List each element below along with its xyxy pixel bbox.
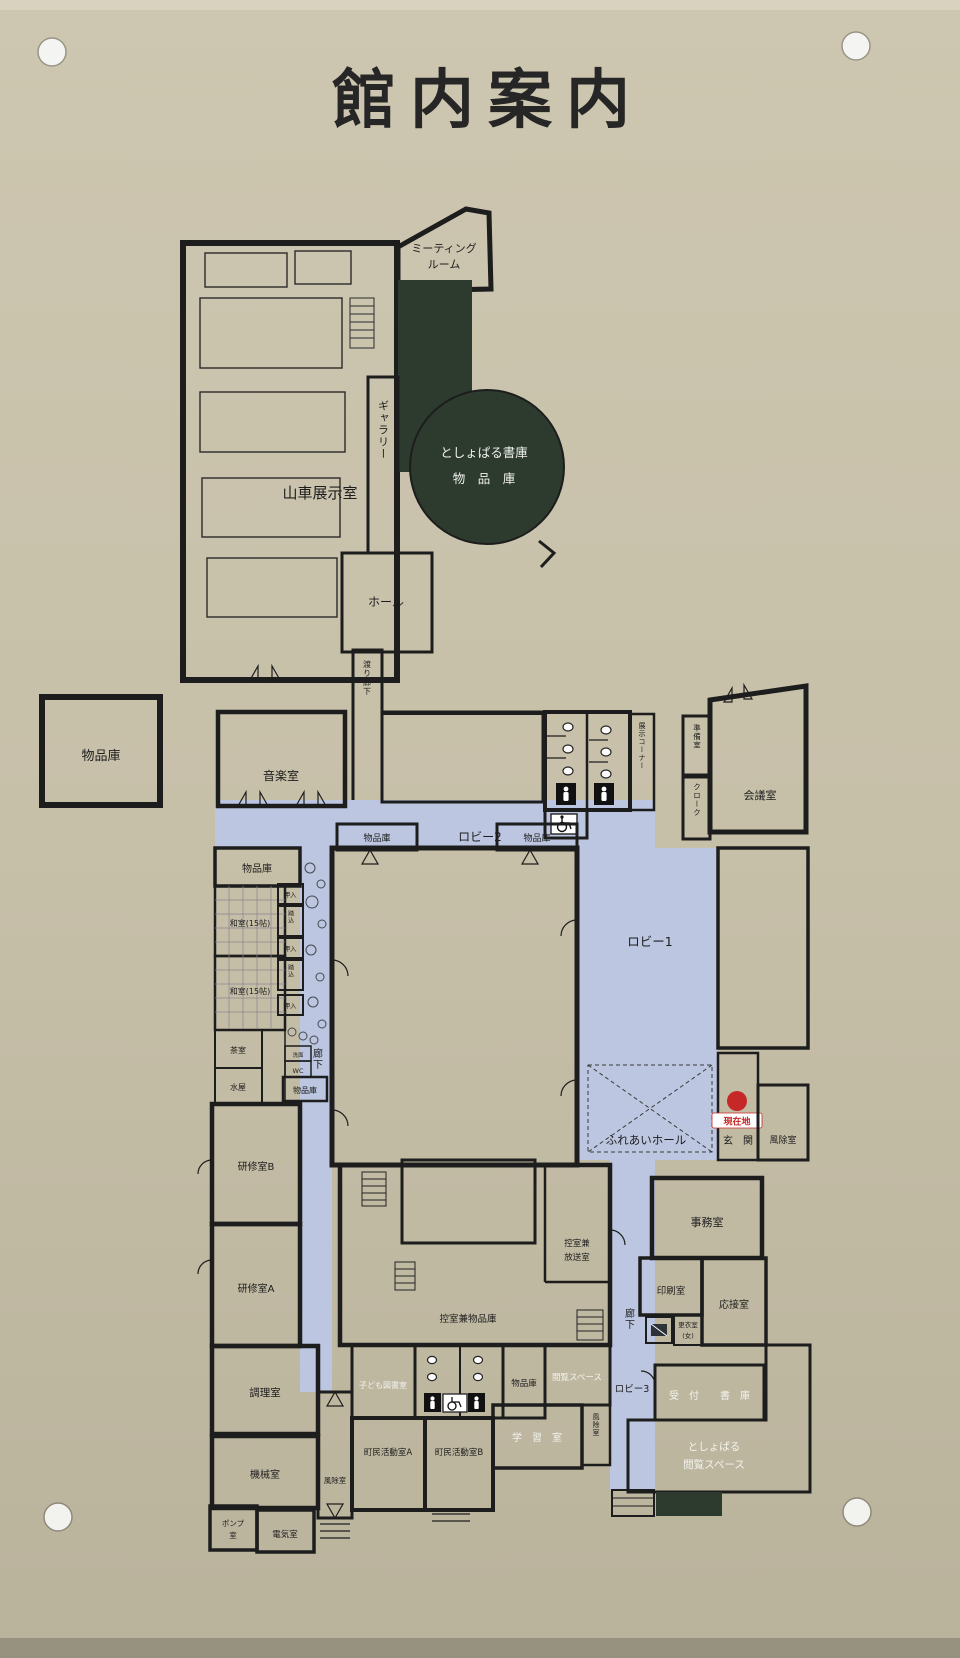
label-hikae-hoso-1: 控室兼 (564, 1238, 590, 1249)
page-title: 館内案内 (332, 64, 644, 138)
label-shoko: 書 庫 (720, 1389, 750, 1402)
label-fujo-south: 風除室 (592, 1413, 600, 1437)
label-roka-east: 廊下 (623, 1307, 635, 1330)
label-lobby3: ロビー3 (615, 1384, 650, 1395)
label-hikae-hoso-2: 放送室 (564, 1252, 590, 1263)
label-insatsushitsu: 印刷室 (657, 1285, 686, 1297)
female-toilet-icon-south (468, 1393, 485, 1412)
label-genkan: 玄 関 (723, 1134, 753, 1147)
label-dashi: 山車展示室 (282, 484, 357, 502)
corridor-lobby1-fureai: ロビー1 ふれあいホール (577, 848, 718, 1160)
label-genzaichi: 現在地 (723, 1116, 750, 1128)
label-washitsu-1: 和室(15帖) (230, 918, 270, 928)
label-osetsushitsu: 応接室 (719, 1298, 749, 1311)
label-fujo-west: 風除室 (324, 1475, 347, 1485)
label-wc: WC (293, 1067, 304, 1075)
label-meeting-2: ルーム (428, 258, 461, 271)
label-oshiire-1: 押入 (284, 890, 298, 899)
label-chomin-a: 町民活動室A (364, 1447, 413, 1458)
label-meeting-1: ミーティング (411, 241, 476, 255)
label-fureai-hall: ふれあいホール (606, 1133, 687, 1147)
label-toshoparu-shoko: としょぱる書庫 (440, 445, 528, 460)
label-uketsuke: 受 付 (669, 1389, 699, 1402)
male-toilet-icon-south (424, 1393, 441, 1412)
label-lobby1: ロビー1 (627, 934, 672, 949)
label-mizuya: 水屋 (230, 1082, 246, 1092)
label-hikae-buppinko: 控室兼物品庫 (439, 1313, 497, 1325)
label-kaigishitsu: 会議室 (744, 788, 777, 802)
guide-sign-board: 館内案内 山車展示室 ミーティング ルーム としょぱる書庫 物 品 庫 ギャラリ… (0, 0, 960, 1658)
female-toilet-icon (594, 783, 614, 805)
label-washitsu-2: 和室(15帖) (230, 986, 270, 996)
label-oshiire-3: 押入 (284, 1001, 298, 1010)
label-junbishitsu: 準備室 (692, 723, 701, 750)
label-fujo-east: 風除室 (769, 1134, 796, 1146)
label-buppinko-wide: 物 品 庫 (453, 471, 516, 486)
label-buppinko-hl: 物品庫 (363, 832, 390, 844)
label-pump-1: ポンプ (222, 1519, 245, 1528)
label-kikaishitsu: 機械室 (250, 1468, 280, 1481)
label-kenshu-b: 研修室B (238, 1160, 275, 1173)
label-pump-2: 室 (229, 1530, 237, 1540)
label-roka-west: 廊下 (311, 1047, 323, 1070)
label-buppinko-3: 物品庫 (511, 1378, 537, 1389)
label-senmen: 洗面 (292, 1051, 304, 1059)
label-hall: ホール (368, 595, 404, 609)
label-gakushushitsu: 学 習 室 (512, 1431, 562, 1444)
label-kodomo: 子ども図書室 (359, 1380, 407, 1390)
label-oshiire-2: 押入 (284, 944, 298, 953)
label-koishitsu-1: 更衣室 (678, 1320, 698, 1329)
label-watari-roka: 渡り廊下 (363, 659, 372, 696)
label-gallery: ギャラリー (377, 400, 390, 460)
label-buppinko-annex: 物品庫 (81, 749, 120, 764)
label-fumikomi-2: 踏込 (287, 963, 294, 978)
label-cloak: クローク (693, 783, 702, 817)
wheelchair-icon-south (443, 1394, 467, 1412)
label-denkishitsu: 電気室 (272, 1529, 298, 1540)
label-koishitsu-2: (女) (682, 1331, 694, 1340)
label-chomin-b: 町民活動室B (435, 1447, 484, 1458)
label-chorishitsu: 調理室 (249, 1386, 281, 1399)
label-toshoparu-etsuran-2: 閲覧スペース (683, 1458, 745, 1471)
label-buppinko-hr: 物品庫 (523, 832, 550, 844)
label-tenji-corner: 展示コーナー (638, 722, 646, 770)
corridor-lobby3: 廊下 ロビー3 (610, 1160, 655, 1516)
label-fumikomi-1: 踏込 (287, 909, 294, 924)
floor-plan-svg: 館内案内 山車展示室 ミーティング ルーム としょぱる書庫 物 品 庫 ギャラリ… (0, 0, 960, 1658)
label-chashitsu: 茶室 (230, 1045, 246, 1055)
label-lobby2: ロビー2 (458, 830, 502, 844)
label-buppinko-1: 物品庫 (242, 862, 272, 875)
male-toilet-icon (556, 783, 576, 805)
label-etsuran: 閲覧スペース (552, 1372, 602, 1383)
label-ongakushitsu: 音楽室 (263, 768, 299, 783)
label-buppinko-2: 物品庫 (293, 1085, 317, 1095)
label-jimushitsu: 事務室 (691, 1215, 724, 1229)
label-toshoparu-etsuran-1: としょぱる (688, 1441, 741, 1453)
label-kenshu-a: 研修室A (238, 1282, 275, 1295)
